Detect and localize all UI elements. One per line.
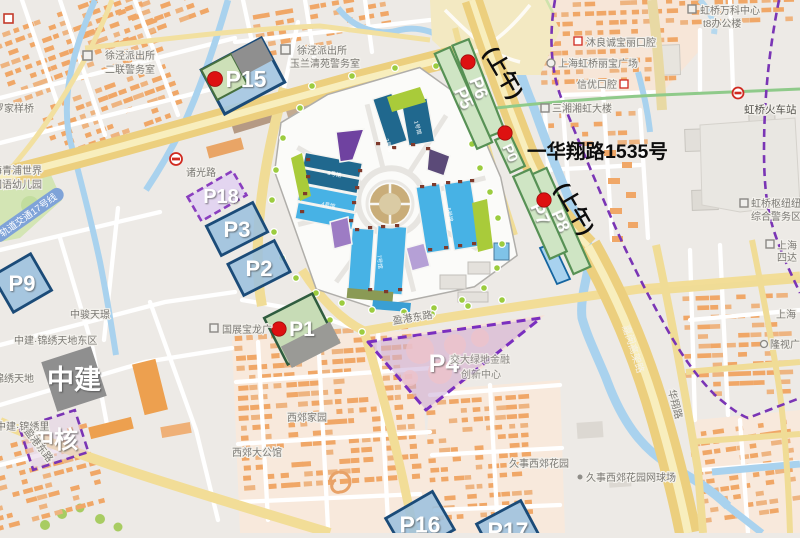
svg-text:四达: 四达 xyxy=(777,252,797,264)
svg-text:虹桥枢纽纽约: 虹桥枢纽纽约 xyxy=(751,197,800,210)
svg-text:徐泾派出所: 徐泾派出所 xyxy=(105,49,155,62)
svg-text:虹桥火车站: 虹桥火车站 xyxy=(744,103,797,116)
svg-text:诸光路: 诸光路 xyxy=(186,166,216,179)
svg-text:P15: P15 xyxy=(226,66,267,92)
svg-text:久事西郊花园网球场: 久事西郊花园网球场 xyxy=(586,471,676,484)
svg-text:海青浦世界: 海青浦世界 xyxy=(0,164,42,177)
svg-text:上海: 上海 xyxy=(776,308,796,321)
svg-text:西郊大公馆: 西郊大公馆 xyxy=(232,446,282,459)
svg-text:一华翔路1535号: 一华翔路1535号 xyxy=(527,140,668,163)
svg-text:久事西郊花园: 久事西郊花园 xyxy=(509,457,569,470)
svg-text:信优口腔: 信优口腔 xyxy=(577,78,617,91)
svg-text:隆视广: 隆视广 xyxy=(770,338,800,351)
svg-text:徐泾派出所: 徐泾派出所 xyxy=(297,44,347,57)
svg-text:交大绿地金融: 交大绿地金融 xyxy=(450,353,510,366)
svg-text:西郊家园: 西郊家园 xyxy=(287,411,327,424)
svg-text:P17: P17 xyxy=(488,517,529,533)
svg-text:P16: P16 xyxy=(400,511,441,533)
svg-text:三湘湘虹大楼: 三湘湘虹大楼 xyxy=(552,102,612,115)
svg-text:综合警务区: 综合警务区 xyxy=(751,210,800,223)
svg-text:二联警务室: 二联警务室 xyxy=(105,63,155,76)
svg-text:上海虹桥丽宝广场: 上海虹桥丽宝广场 xyxy=(558,57,638,70)
svg-text:锦绣天地: 锦绣天地 xyxy=(0,372,34,385)
svg-text:中骏天璟: 中骏天璟 xyxy=(70,308,110,321)
svg-text:国语幼儿园: 国语幼儿园 xyxy=(0,178,42,191)
svg-text:国展宝龙广: 国展宝龙广 xyxy=(222,323,272,336)
svg-text:P3: P3 xyxy=(224,217,251,242)
svg-text:t8办公楼: t8办公楼 xyxy=(703,17,741,30)
svg-text:中建·锦绣天地东区: 中建·锦绣天地东区 xyxy=(14,334,97,347)
svg-text:罗家样桥: 罗家样桥 xyxy=(0,102,34,115)
svg-text:创新中心: 创新中心 xyxy=(461,368,501,381)
svg-text:P1: P1 xyxy=(289,318,315,341)
svg-text:玉兰清苑警务室: 玉兰清苑警务室 xyxy=(290,57,360,70)
svg-text:上海: 上海 xyxy=(777,239,797,252)
svg-text:P9: P9 xyxy=(9,271,36,296)
svg-text:P18: P18 xyxy=(203,186,239,208)
svg-text:沐良诚宝丽口腔: 沐良诚宝丽口腔 xyxy=(586,36,656,49)
svg-text:P2: P2 xyxy=(246,256,273,281)
svg-text:中建: 中建 xyxy=(47,365,101,395)
svg-text:虹桥万科中心: 虹桥万科中心 xyxy=(700,4,760,17)
